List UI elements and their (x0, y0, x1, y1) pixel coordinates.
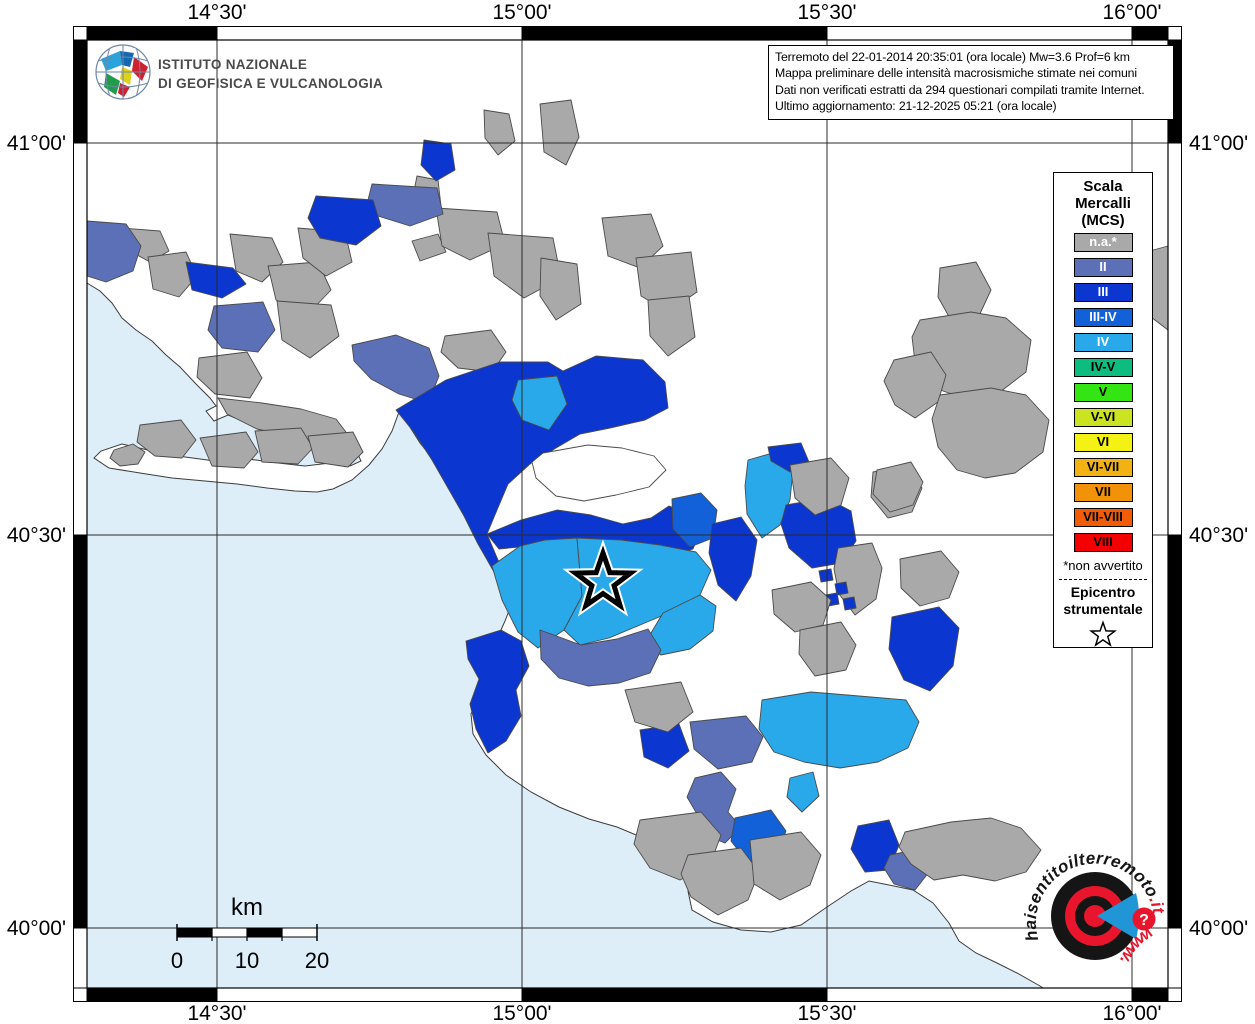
earthquake-info-box: Terremoto del 22-01-2014 20:35:01 (ora l… (768, 45, 1174, 120)
intensity-legend: Scala Mercalli (MCS) n.a.*IIIIIIII-IVIVI… (1053, 172, 1153, 648)
axis-bottom-3: 15°30' (797, 1002, 856, 1024)
axis-right-3: 40°00' (1189, 917, 1248, 940)
legend-title-line3: (MCS) (1054, 212, 1152, 229)
info-line-source: Dati non verificati estratti da 294 ques… (775, 82, 1167, 98)
scale-tick-10: 10 (235, 948, 259, 973)
axis-left-1: 41°00' (7, 132, 66, 155)
scale-tick-0: 0 (171, 948, 183, 973)
legend-swatch-viii: VIII (1074, 533, 1133, 552)
axis-bottom-4: 16°00' (1102, 1002, 1161, 1024)
legend-swatch-v: V (1074, 383, 1133, 402)
axis-top-3: 15°30' (797, 1, 856, 24)
legend-swatch-na: n.a.* (1074, 233, 1133, 252)
legend-swatch-vvi: V-VI (1074, 408, 1133, 427)
legend-swatch-ii: II (1074, 258, 1133, 277)
scale-unit-label: km (231, 894, 263, 921)
seismic-intensity-map-page: km 0 10 20 (0, 0, 1255, 1024)
axis-right-2: 40°30' (1189, 524, 1248, 547)
legend-swatches: n.a.*IIIIIIII-IVIVIV-VVV-VIVIVI-VIIVIIVI… (1054, 233, 1152, 552)
legend-title-line2: Mercalli (1054, 195, 1152, 212)
axis-bottom-1: 14°30' (187, 1002, 246, 1024)
legend-title-line1: Scala (1054, 178, 1152, 195)
legend-swatch-vi: VI (1074, 433, 1133, 452)
legend-epicenter-label: Epicentro strumentale (1054, 584, 1152, 618)
ingv-globe-icon (96, 45, 150, 99)
legend-swatch-ivv: IV-V (1074, 358, 1133, 377)
scale-tick-20: 20 (305, 948, 329, 973)
axis-top-4: 16°00' (1102, 1, 1161, 24)
legend-star-icon (1088, 620, 1118, 648)
legend-footnote: *non avvertito (1054, 558, 1152, 573)
legend-swatch-vii: VII (1074, 483, 1133, 502)
ingv-name-line1: ISTITUTO NAZIONALE (158, 57, 307, 72)
axis-top-2: 15°00' (492, 1, 551, 24)
municipality-III (819, 569, 833, 582)
axis-right-1: 41°00' (1189, 132, 1248, 155)
legend-epicenter-line1: Epicentro (1054, 584, 1152, 601)
legend-swatch-iiiiv: III-IV (1074, 308, 1133, 327)
axis-left-2: 40°30' (7, 524, 66, 547)
legend-swatch-iv: IV (1074, 333, 1133, 352)
info-line-event: Terremoto del 22-01-2014 20:35:01 (ora l… (775, 49, 1167, 65)
info-line-updated: Ultimo aggiornamento: 21-12-2025 05:21 (… (775, 98, 1167, 114)
legend-divider (1059, 579, 1147, 580)
legend-epicenter-line2: strumentale (1054, 601, 1152, 618)
legend-swatch-viiviii: VII-VIII (1074, 508, 1133, 527)
legend-swatch-iii: III (1074, 283, 1133, 302)
legend-title: Scala Mercalli (MCS) (1054, 178, 1152, 229)
axis-bottom-2: 15°00' (492, 1002, 551, 1024)
municipality-III (843, 597, 856, 610)
legend-swatch-vivii: VI-VII (1074, 458, 1133, 477)
info-line-map-type: Mappa preliminare delle intensità macros… (775, 65, 1167, 81)
axis-left-3: 40°00' (7, 917, 66, 940)
ingv-name-line2: DI GEOFISICA E VULCANOLOGIA (158, 76, 383, 91)
axis-top-1: 14°30' (187, 1, 246, 24)
